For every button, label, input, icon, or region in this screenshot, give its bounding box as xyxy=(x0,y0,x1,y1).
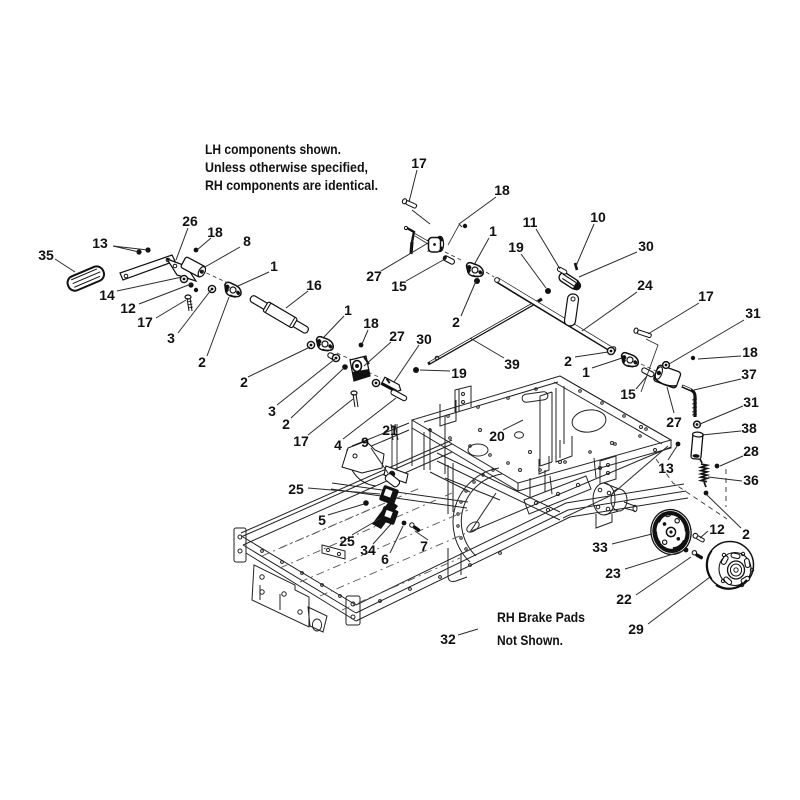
svg-text:15: 15 xyxy=(620,386,636,402)
svg-text:34: 34 xyxy=(360,542,376,558)
svg-text:31: 31 xyxy=(743,394,759,410)
svg-text:27: 27 xyxy=(666,414,682,430)
svg-text:27: 27 xyxy=(366,268,382,284)
svg-text:31: 31 xyxy=(745,305,761,321)
svg-text:30: 30 xyxy=(638,238,654,254)
svg-text:25: 25 xyxy=(288,481,304,497)
svg-text:17: 17 xyxy=(698,288,714,304)
svg-text:14: 14 xyxy=(99,287,115,303)
svg-text:2: 2 xyxy=(240,374,248,390)
svg-text:1: 1 xyxy=(489,223,497,239)
svg-text:36: 36 xyxy=(743,472,759,488)
svg-text:5: 5 xyxy=(318,512,326,528)
svg-text:24: 24 xyxy=(637,277,653,293)
svg-text:20: 20 xyxy=(489,428,505,444)
svg-text:19: 19 xyxy=(451,365,467,381)
svg-text:29: 29 xyxy=(628,621,644,637)
svg-text:18: 18 xyxy=(742,344,758,360)
svg-text:3: 3 xyxy=(167,330,175,346)
svg-text:13: 13 xyxy=(92,235,108,251)
svg-text:4: 4 xyxy=(334,437,342,453)
svg-text:7: 7 xyxy=(420,538,428,554)
svg-text:22: 22 xyxy=(616,591,632,607)
svg-text:2: 2 xyxy=(564,353,572,369)
svg-text:3: 3 xyxy=(268,403,276,419)
svg-text:2: 2 xyxy=(198,354,206,370)
svg-text:1: 1 xyxy=(582,364,590,380)
svg-text:13: 13 xyxy=(658,460,674,476)
svg-text:12: 12 xyxy=(120,300,136,316)
svg-text:23: 23 xyxy=(605,565,621,581)
svg-text:Unless otherwise specified,: Unless otherwise specified, xyxy=(205,159,368,175)
svg-text:11: 11 xyxy=(523,214,538,230)
svg-text:12: 12 xyxy=(709,521,725,537)
svg-text:10: 10 xyxy=(590,209,606,225)
svg-text:2: 2 xyxy=(282,416,290,432)
svg-text:35: 35 xyxy=(38,247,54,263)
svg-text:RH Brake Pads: RH Brake Pads xyxy=(497,609,585,625)
svg-text:2: 2 xyxy=(742,526,750,542)
svg-text:18: 18 xyxy=(207,224,223,240)
svg-text:17: 17 xyxy=(293,433,309,449)
svg-text:27: 27 xyxy=(389,328,405,344)
svg-text:6: 6 xyxy=(381,551,389,567)
svg-text:16: 16 xyxy=(306,277,322,293)
svg-text:Not Shown.: Not Shown. xyxy=(497,632,563,648)
svg-text:2: 2 xyxy=(452,314,460,330)
svg-text:1: 1 xyxy=(270,258,278,274)
svg-text:18: 18 xyxy=(494,182,510,198)
svg-text:17: 17 xyxy=(137,314,153,330)
svg-text:37: 37 xyxy=(741,366,757,382)
svg-text:30: 30 xyxy=(416,331,432,347)
svg-text:26: 26 xyxy=(182,213,198,229)
svg-text:1: 1 xyxy=(344,302,352,318)
svg-text:19: 19 xyxy=(508,239,524,255)
svg-text:21: 21 xyxy=(382,422,398,438)
svg-text:9: 9 xyxy=(361,434,369,450)
svg-text:39: 39 xyxy=(504,356,520,372)
svg-text:8: 8 xyxy=(243,233,251,249)
svg-text:25: 25 xyxy=(339,533,355,549)
svg-text:15: 15 xyxy=(391,278,407,294)
svg-text:33: 33 xyxy=(592,539,608,555)
svg-text:32: 32 xyxy=(440,631,456,647)
svg-text:LH components shown.: LH components shown. xyxy=(205,141,341,157)
svg-text:17: 17 xyxy=(411,155,427,171)
svg-text:38: 38 xyxy=(741,420,757,436)
svg-text:18: 18 xyxy=(363,315,379,331)
svg-text:RH components are identical.: RH components are identical. xyxy=(205,177,378,193)
svg-text:28: 28 xyxy=(743,443,759,459)
